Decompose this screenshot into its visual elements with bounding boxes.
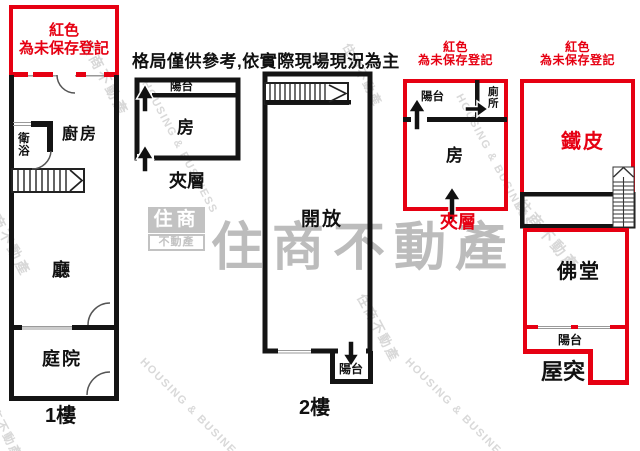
room-label-room: 房 xyxy=(446,146,463,165)
window-line xyxy=(13,125,31,126)
door-arc xyxy=(87,372,110,395)
window-line xyxy=(22,326,72,327)
wall xyxy=(403,117,411,122)
area-label-mezzanine-unregistered: 夾層 xyxy=(440,212,476,232)
window-line xyxy=(278,352,311,353)
room-label-balcony: 陽台 xyxy=(170,81,193,94)
wall xyxy=(9,75,14,401)
note-line: 紅色 xyxy=(49,22,79,40)
room-label-living: 廳 xyxy=(52,260,70,280)
wall xyxy=(265,100,351,105)
room-label-buddhist-hall: 佛堂 xyxy=(557,261,601,283)
unregistered-note-1f: 紅色 為未保存登記 xyxy=(13,9,115,71)
floorplan-image: 住商不動產 住商不動產 住商不動產 住商不動產 住商不動產 住商不動產 HOUS… xyxy=(0,0,640,451)
room-label-toilet: 廁所 xyxy=(486,86,498,109)
room-label-metal-shed: 鐵皮 xyxy=(561,131,605,153)
red-wall-dash xyxy=(76,72,86,77)
unregistered-note-mezzanine: 紅色 為未保存登記 xyxy=(403,41,508,67)
red-box-wall xyxy=(115,5,119,75)
wall xyxy=(368,351,373,384)
door-arc xyxy=(88,303,110,325)
room-label-courtyard: 庭院 xyxy=(42,349,82,369)
unregistered-note-rooftop: 紅色 為未保存登記 xyxy=(520,41,635,67)
red-wall xyxy=(588,349,593,385)
red-wall xyxy=(523,228,527,354)
floor-label-2f: 2樓 xyxy=(299,397,330,419)
right-arrow-icon xyxy=(465,101,488,117)
window-line xyxy=(278,350,311,351)
wall xyxy=(330,379,373,384)
window-line xyxy=(13,122,31,123)
area-label-mezzanine: 夾層 xyxy=(169,171,205,191)
note-line: 為未保存登記 xyxy=(19,40,109,58)
red-wall-dash xyxy=(571,325,578,329)
window-line xyxy=(22,328,72,329)
wall xyxy=(427,117,507,122)
room-label-balcony: 陽台 xyxy=(421,91,444,104)
disclaimer-text: 格局僅供參考,依實際現場現況為主 xyxy=(132,52,400,71)
area-label-rooftop: 屋突 xyxy=(541,360,585,385)
red-wall xyxy=(625,228,629,385)
room-label-bathroom: 衛浴 xyxy=(16,132,29,157)
room-label-room: 房 xyxy=(177,118,194,137)
door-arc xyxy=(32,151,51,169)
wall xyxy=(47,121,53,152)
wall xyxy=(152,93,240,98)
wall xyxy=(9,396,119,401)
room-label-open-space: 開放 xyxy=(301,209,343,230)
room-label-balcony: 陽台 xyxy=(558,334,582,347)
red-wall-dash xyxy=(33,72,53,77)
red-wall xyxy=(588,380,629,385)
door-arc xyxy=(57,75,75,93)
wall xyxy=(114,75,119,401)
room-label-kitchen: 廚房 xyxy=(62,126,98,144)
room-label-balcony: 陽台 xyxy=(339,363,363,376)
note-line: 為未保存登記 xyxy=(520,54,635,67)
red-wall xyxy=(523,349,593,354)
red-wall xyxy=(523,228,629,232)
note-line: 為未保存登記 xyxy=(403,54,508,67)
floor-label-1f: 1樓 xyxy=(45,405,76,427)
